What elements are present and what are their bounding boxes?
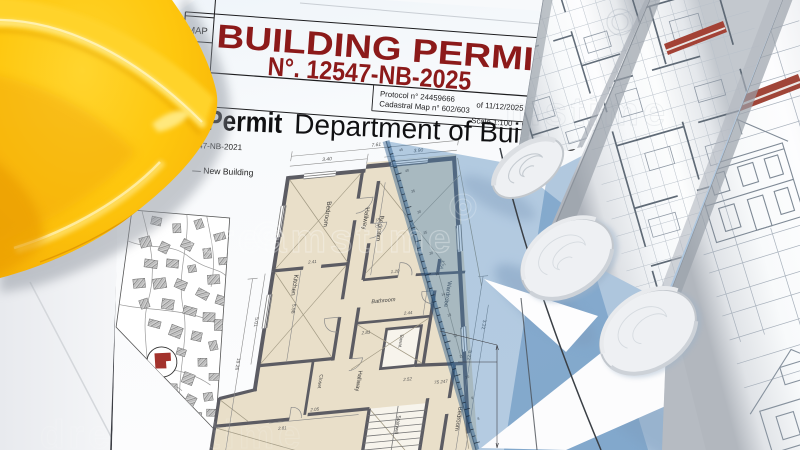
svg-text:2.44: 2.44 [403, 310, 413, 316]
svg-text:2.52: 2.52 [403, 376, 413, 382]
svg-text:mstime: mstime [505, 90, 669, 134]
svg-text:1.20: 1.20 [390, 268, 400, 274]
svg-text:dreamstime: dreamstime [40, 413, 305, 450]
svg-text:2.83: 2.83 [361, 330, 371, 336]
svg-text:3.40: 3.40 [322, 156, 333, 163]
svg-text:dreamstime: dreamstime [190, 217, 455, 261]
svg-text:2.05: 2.05 [310, 407, 320, 413]
